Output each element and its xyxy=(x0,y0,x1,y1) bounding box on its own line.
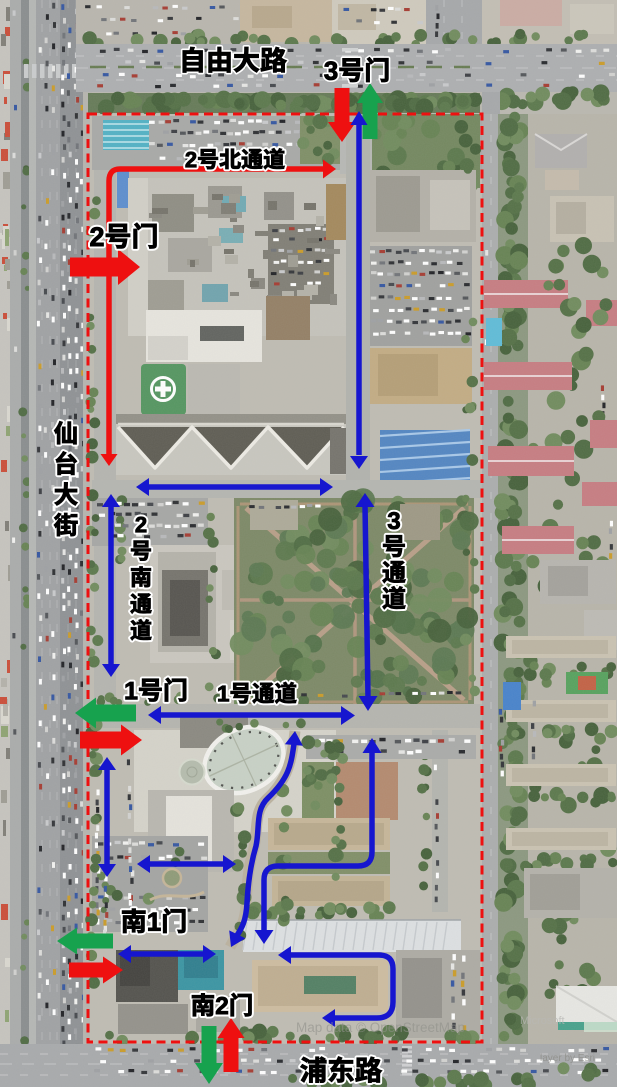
svg-text:Microsoft: Microsoft xyxy=(520,1015,565,1027)
svg-text:layer by Esri: layer by Esri xyxy=(540,1053,595,1064)
svg-text:Map data © OpenStreetMap: Map data © OpenStreetMap xyxy=(296,1020,465,1035)
